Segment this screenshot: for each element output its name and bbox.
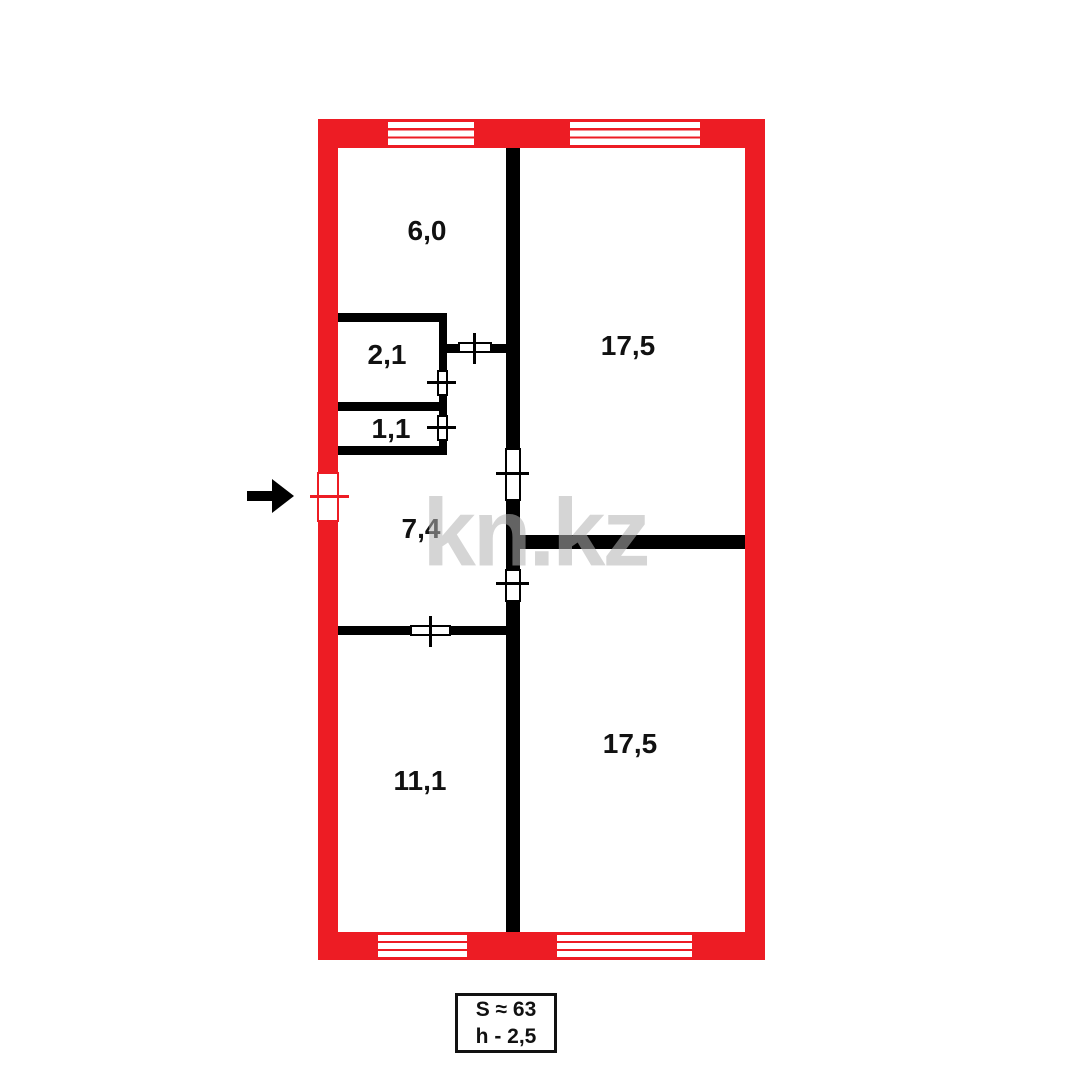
info-box: S ≈ 63 h - 2,5 (455, 993, 557, 1053)
door-room175-upper-swing-tick (496, 472, 529, 475)
room-label-6-0: 6,0 (408, 215, 447, 247)
window-bottom-right (557, 935, 692, 957)
wall-closet21-11-divider (338, 402, 446, 411)
entrance-arrow-head (272, 479, 294, 513)
outer-wall-left (318, 119, 338, 960)
room-label-17-5-upper: 17,5 (601, 330, 656, 362)
floor-plan-canvas: 6,02,11,17,417,517,511,1 kn.kz S ≈ 63 h … (0, 0, 1080, 1080)
room-label-17-5-lower: 17,5 (603, 728, 658, 760)
room-label-2-1: 2,1 (368, 339, 407, 371)
wall-closet21-top (338, 313, 446, 322)
watermark: kn.kz (422, 479, 647, 589)
window-top-left (388, 122, 474, 145)
room-label-1-1: 1,1 (372, 413, 411, 445)
outer-wall-right (745, 119, 765, 960)
door-closet11-swing-tick (427, 426, 456, 429)
door-entrance-swing-tick (310, 495, 349, 498)
area-label: S ≈ 63 (476, 996, 537, 1023)
entrance-arrow-shaft (247, 491, 275, 501)
wall-closet11-bottom (338, 446, 446, 455)
room-label-11-1: 11,1 (394, 765, 447, 797)
door-hall-top-swing-tick (473, 333, 476, 364)
window-top-right (570, 122, 700, 145)
window-bottom-left (378, 935, 467, 957)
door-room111-swing-tick (429, 616, 432, 647)
door-closet21-swing-tick (427, 381, 456, 384)
height-label: h - 2,5 (476, 1023, 537, 1050)
